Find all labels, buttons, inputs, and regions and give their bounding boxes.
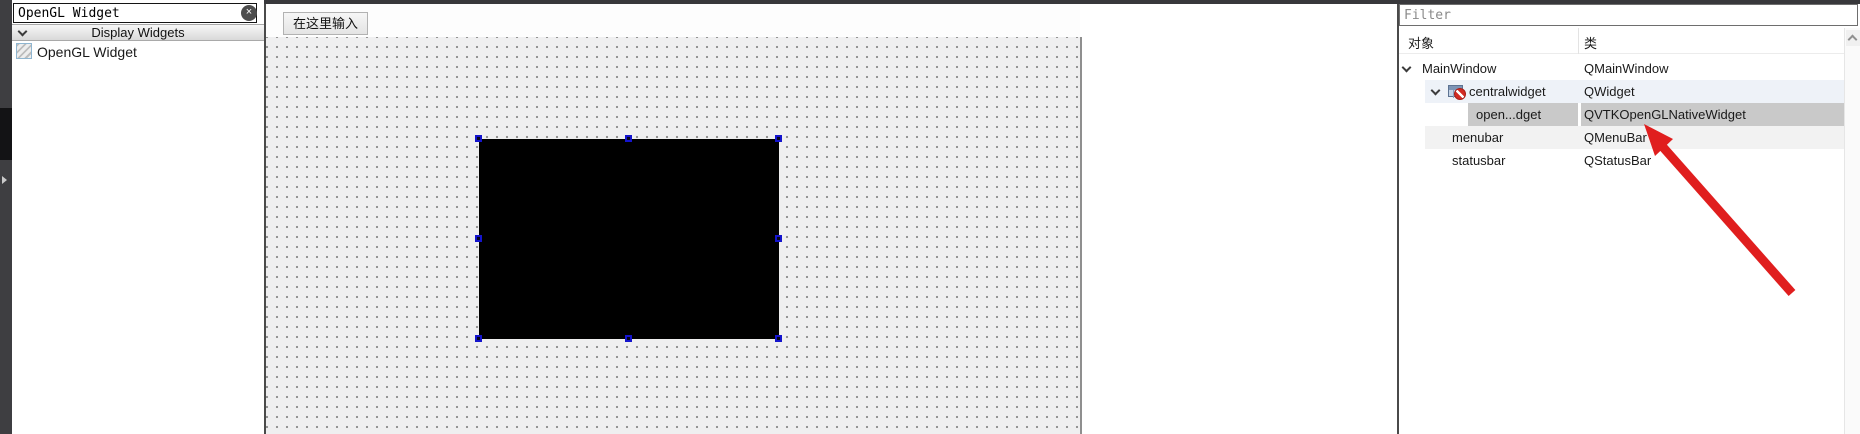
- column-header-class[interactable]: 类: [1584, 33, 1597, 52]
- widget-item-opengl[interactable]: OpenGL Widget: [12, 42, 264, 62]
- tree-row-mainwindow[interactable]: MainWindow QMainWindow: [1399, 57, 1845, 80]
- collapsed-dock-rail[interactable]: [0, 0, 12, 434]
- tree-row-openglwidget-selected[interactable]: open...dget QVTKOpenGLNativeWidget: [1399, 103, 1845, 126]
- tree-row-statusbar[interactable]: statusbar QStatusBar: [1399, 149, 1845, 172]
- chevron-down-icon[interactable]: [1402, 63, 1412, 73]
- chevron-up-icon: [1848, 35, 1858, 45]
- inspector-filter-input[interactable]: [1399, 4, 1858, 26]
- object-name: menubar: [1452, 126, 1503, 149]
- column-separator[interactable]: [1578, 28, 1579, 54]
- widget-box-search-input[interactable]: [13, 3, 257, 23]
- class-name: QMainWindow: [1584, 57, 1669, 80]
- category-label: Display Widgets: [91, 25, 184, 40]
- category-display-widgets[interactable]: Display Widgets: [12, 24, 264, 41]
- resize-handle-top-left[interactable]: [475, 135, 482, 142]
- scroll-up-button[interactable]: [1846, 30, 1860, 46]
- tree-row-menubar[interactable]: menubar QMenuBar: [1399, 126, 1845, 149]
- resize-handle-top-center[interactable]: [625, 135, 632, 142]
- inspector-column-header[interactable]: 对象 类: [1399, 28, 1845, 54]
- opengl-widget-icon: [16, 43, 32, 59]
- widget-box-panel: × Display Widgets OpenGL Widget: [12, 0, 264, 434]
- inspector-scrollbar[interactable]: [1844, 28, 1860, 434]
- object-name: MainWindow: [1422, 57, 1496, 80]
- chevron-down-icon: [18, 27, 28, 37]
- clear-search-icon[interactable]: ×: [241, 5, 257, 21]
- resize-handle-top-right[interactable]: [775, 135, 782, 142]
- class-name: QVTKOpenGLNativeWidget: [1584, 103, 1746, 126]
- resize-handle-mid-right[interactable]: [775, 235, 782, 242]
- collapsed-dock-segment[interactable]: [0, 108, 12, 160]
- object-name: centralwidget: [1469, 80, 1546, 103]
- tree-row-centralwidget[interactable]: centralwidget QWidget: [1399, 80, 1845, 103]
- broken-layout-widget-icon: [1448, 85, 1463, 97]
- qt-designer-screen: × Display Widgets OpenGL Widget 在这里输入 对象…: [0, 0, 1860, 434]
- column-header-object[interactable]: 对象: [1408, 33, 1434, 52]
- object-name: open...dget: [1476, 103, 1541, 126]
- object-inspector-panel: 对象 类 MainWindow QMainWindow centralwidge…: [1399, 4, 1860, 434]
- widget-item-label: OpenGL Widget: [37, 42, 137, 62]
- class-name: QStatusBar: [1584, 149, 1651, 172]
- menu-type-here-placeholder[interactable]: 在这里输入: [283, 12, 368, 35]
- resize-handle-bottom-left[interactable]: [475, 335, 482, 342]
- object-name: statusbar: [1452, 149, 1505, 172]
- resize-handle-mid-left[interactable]: [475, 235, 482, 242]
- dock-expand-arrow-icon[interactable]: [2, 176, 7, 184]
- resize-handle-bottom-right[interactable]: [775, 335, 782, 342]
- class-name: QWidget: [1584, 80, 1635, 103]
- resize-handle-bottom-center[interactable]: [625, 335, 632, 342]
- class-name: QMenuBar: [1584, 126, 1647, 149]
- form-menubar: 在这里输入: [266, 4, 1080, 37]
- qvtk-opengl-widget[interactable]: [479, 139, 779, 339]
